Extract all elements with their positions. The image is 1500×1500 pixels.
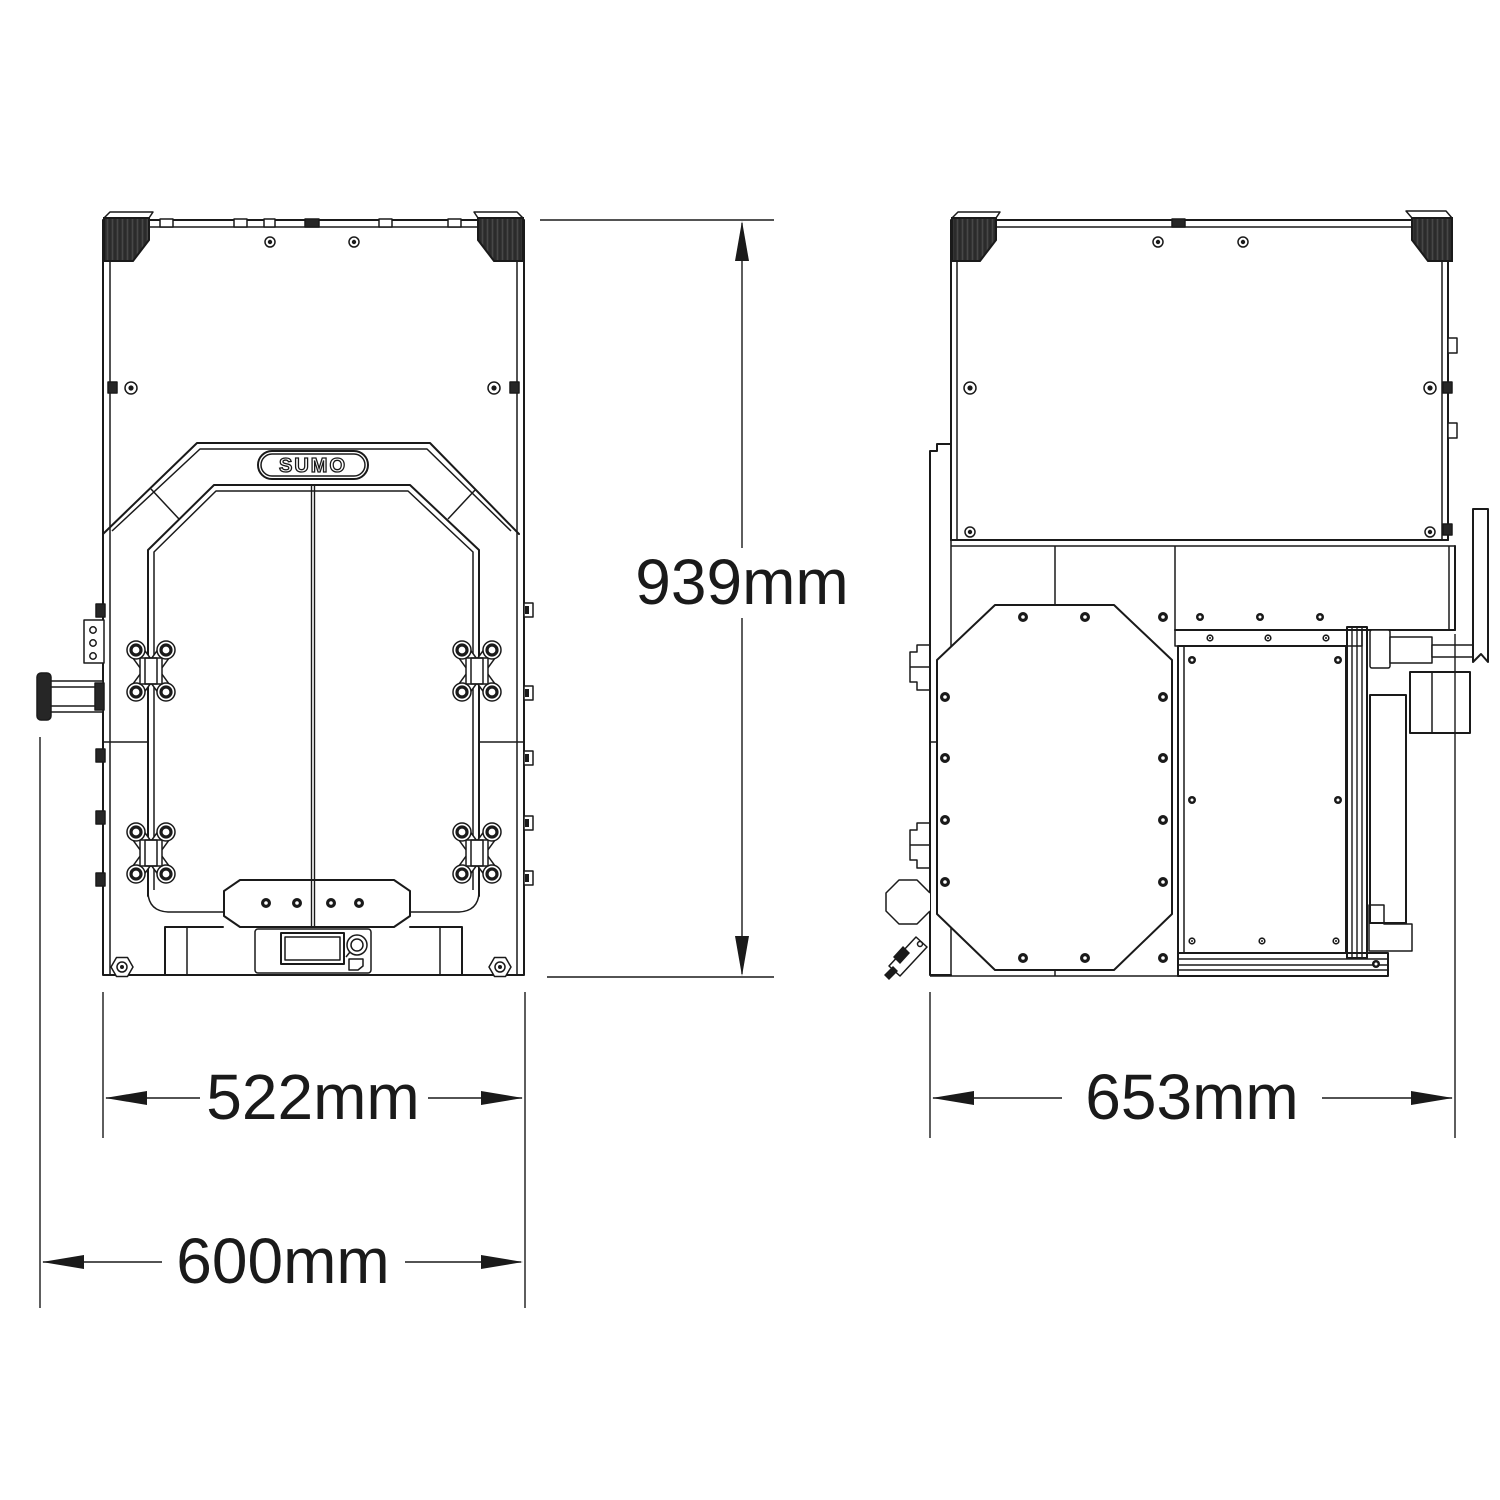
base-unit xyxy=(165,927,462,975)
dimension-height-label: 939mm xyxy=(635,546,848,618)
roller-carriage xyxy=(453,641,501,701)
arrowhead-up-icon xyxy=(735,221,749,261)
roller-carriage xyxy=(127,641,175,701)
spool-holder-rod xyxy=(37,673,104,720)
hex-bolt xyxy=(489,958,511,977)
screw xyxy=(349,237,359,247)
arrowhead-right-icon xyxy=(481,1255,523,1269)
spool-bracket xyxy=(1410,672,1470,733)
screw xyxy=(125,382,137,394)
control-panel xyxy=(255,929,371,973)
roller-carriage xyxy=(453,823,501,883)
side-view xyxy=(884,211,1488,980)
technical-drawing: SUMO xyxy=(0,0,1500,1500)
arrowhead-left-icon xyxy=(105,1091,147,1105)
technical-drawing-page: SUMO xyxy=(0,0,1500,1500)
side-bracket xyxy=(84,620,104,663)
octagon-access-panel xyxy=(937,605,1172,970)
screw xyxy=(488,382,500,394)
door-latch xyxy=(910,645,930,868)
inner-panel xyxy=(1178,646,1346,953)
arrowhead-left-icon xyxy=(42,1255,84,1269)
dimension-height: 939mm xyxy=(540,220,849,977)
front-view: SUMO xyxy=(37,212,533,977)
top-corner-block-left xyxy=(952,212,1000,261)
screw xyxy=(265,237,275,247)
electronics-box xyxy=(1370,695,1406,923)
dimension-overall-width-label: 600mm xyxy=(176,1225,389,1297)
hex-bolt xyxy=(111,958,133,977)
brand-label: SUMO xyxy=(279,455,347,477)
spool-holder-assembly xyxy=(1370,509,1488,733)
thumb-knob xyxy=(886,880,930,924)
dimension-overall-width: 600mm xyxy=(40,737,523,1308)
arrowhead-right-icon xyxy=(1411,1091,1453,1105)
roller-carriage xyxy=(127,823,175,883)
arrowhead-left-icon xyxy=(932,1091,974,1105)
bottom-mount-plate xyxy=(224,880,410,927)
arrowhead-down-icon xyxy=(735,936,749,976)
dimension-depth-label: 653mm xyxy=(1085,1061,1298,1133)
linear-rail xyxy=(1347,627,1367,958)
brand-badge: SUMO xyxy=(258,451,368,479)
arrowhead-right-icon xyxy=(481,1091,523,1105)
top-corner-block-left xyxy=(104,212,153,261)
spool-holder-handle xyxy=(1473,509,1488,662)
gantry-band xyxy=(1175,546,1455,646)
power-lever xyxy=(884,937,927,980)
dimension-frame-width-label: 522mm xyxy=(206,1061,419,1133)
top-corner-block-right xyxy=(1406,211,1452,261)
top-corner-block-right xyxy=(474,212,523,261)
